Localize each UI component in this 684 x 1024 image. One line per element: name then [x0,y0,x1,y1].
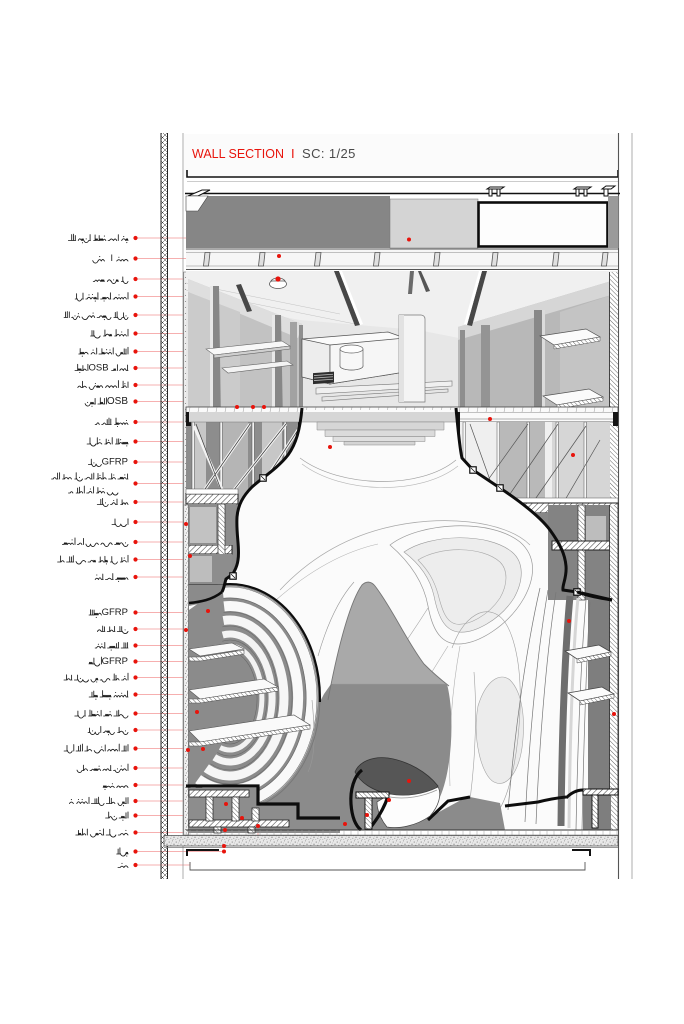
svg-text:WALL SECTION: WALL SECTION [192,146,284,161]
svg-text:GFRP: GFRP [102,607,128,618]
svg-text:SC: 1/25: SC: 1/25 [302,146,356,161]
svg-text:OSB: OSB [107,396,128,407]
svg-text:GFRP: GFRP [102,457,128,468]
svg-text:GFRP: GFRP [102,656,128,667]
svg-text:OSB: OSB [89,363,109,374]
svg-text:I: I [110,253,113,263]
svg-text:I: I [291,146,295,161]
